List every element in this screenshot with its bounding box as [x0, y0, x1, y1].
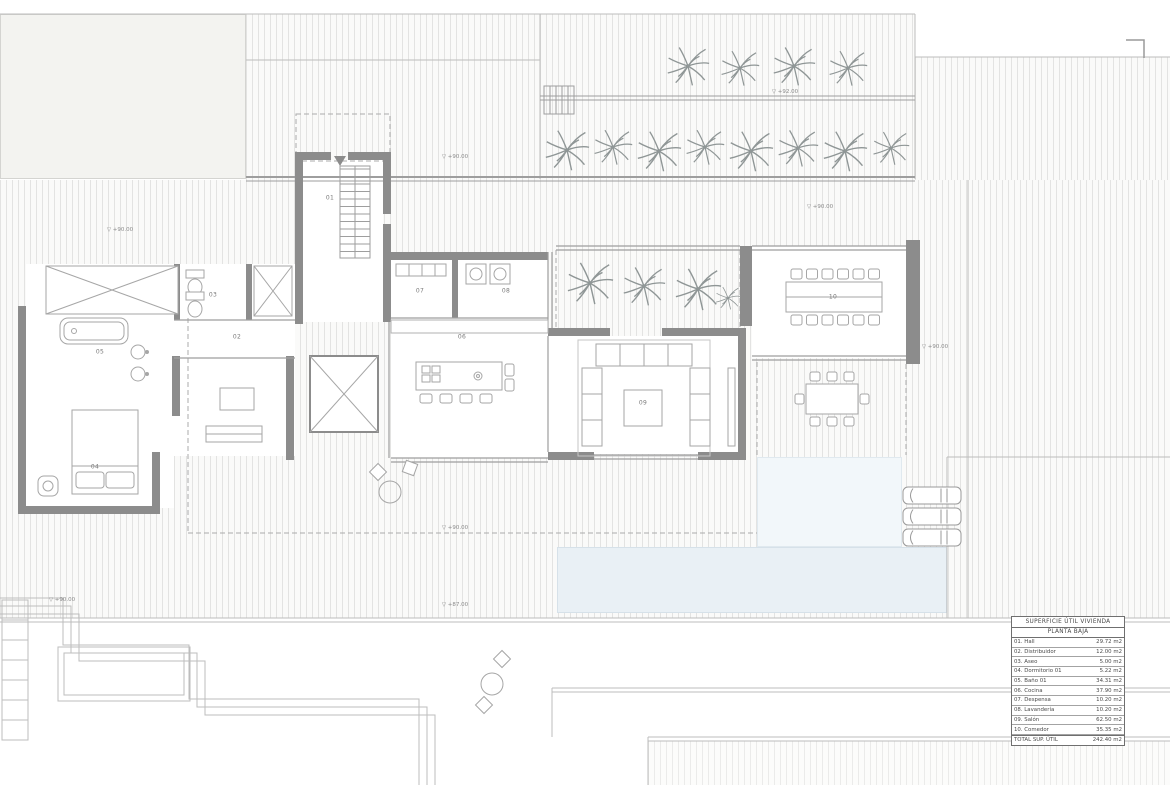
level-marker: ▽ +90.00	[922, 344, 948, 350]
room-label: 09	[639, 400, 647, 407]
room-label: 02	[233, 334, 241, 341]
area-table-total-row: TOTAL SUP. ÚTIL 242.40 m2	[1012, 735, 1124, 745]
area-table-row: 07. Despensa10.20 m2	[1012, 696, 1124, 706]
area-table-row: 04. Dormitorio 015.22 m2	[1012, 667, 1124, 677]
area-table-row: 08. Lavandería10.20 m2	[1012, 706, 1124, 716]
area-table-row: 09. Salón62.50 m2	[1012, 716, 1124, 726]
area-table-row: 10. Comedor35.35 m2	[1012, 725, 1124, 735]
room-label: 05	[96, 349, 104, 356]
level-marker: ▽ +90.00	[107, 227, 133, 233]
room-label: 06	[458, 334, 466, 341]
area-table-row: 01. Hall29.72 m2	[1012, 638, 1124, 648]
area-table-row: 02. Distribuidor12.00 m2	[1012, 648, 1124, 658]
area-table-row: 06. Cocina37.90 m2	[1012, 686, 1124, 696]
area-table-row: 05. Baño 0134.31 m2	[1012, 677, 1124, 687]
total-label: TOTAL SUP. ÚTIL	[1014, 737, 1058, 743]
label-layer: 01020304050607080910▽ +92.00▽ +90.00▽ +9…	[0, 0, 1170, 785]
room-label: 04	[91, 464, 99, 471]
level-marker: ▽ +90.00	[442, 525, 468, 531]
level-marker: ▽ +90.00	[807, 204, 833, 210]
level-marker: ▽ +92.00	[772, 89, 798, 95]
area-table-subtitle: PLANTA BAJA	[1012, 628, 1124, 639]
room-label: 01	[326, 195, 334, 202]
area-table: SUPERFICIE ÚTIL VIVIENDA PLANTA BAJA 01.…	[1011, 616, 1125, 746]
room-label: 07	[416, 288, 424, 295]
room-label: 10	[829, 294, 837, 301]
floor-plan-sheet: 01020304050607080910▽ +92.00▽ +90.00▽ +9…	[0, 0, 1170, 785]
room-label: 08	[502, 288, 510, 295]
level-marker: ▽ +90.00	[49, 597, 75, 603]
area-table-title: SUPERFICIE ÚTIL VIVIENDA	[1012, 617, 1124, 628]
room-label: 03	[209, 292, 217, 299]
area-table-row: 03. Aseo5.00 m2	[1012, 657, 1124, 667]
level-marker: ▽ +87.00	[442, 602, 468, 608]
level-marker: ▽ +90.00	[442, 154, 468, 160]
total-value: 242.40 m2	[1093, 737, 1122, 743]
